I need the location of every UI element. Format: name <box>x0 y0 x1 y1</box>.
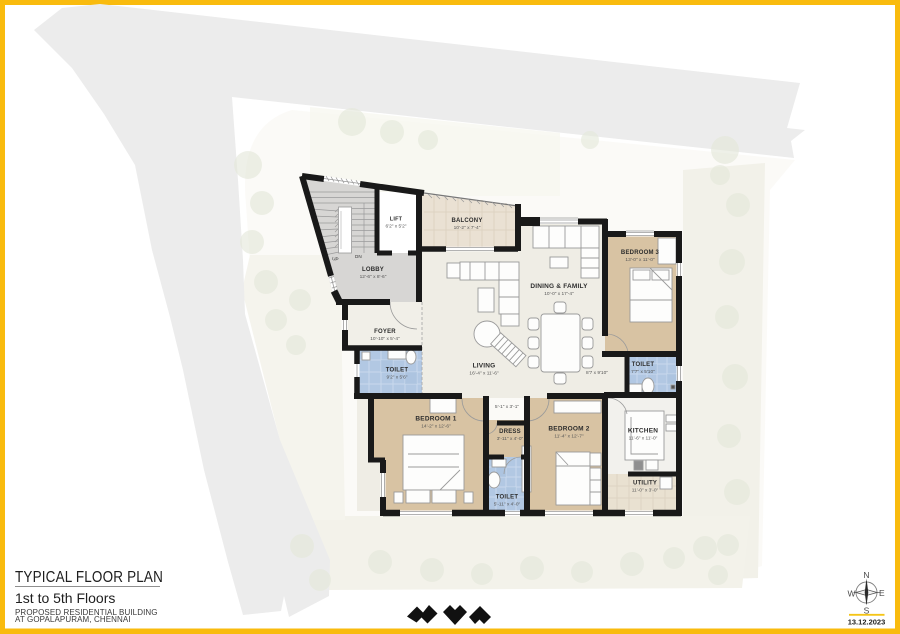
svg-text:BEDROOM 2: BEDROOM 2 <box>548 426 589 433</box>
svg-text:8'7 x 9'10": 8'7 x 9'10" <box>586 370 608 376</box>
svg-text:N: N <box>863 570 869 580</box>
svg-text:16'-4" x 11'-6": 16'-4" x 11'-6" <box>469 371 498 377</box>
svg-text:DN: DN <box>355 254 362 259</box>
svg-text:TOILET: TOILET <box>386 368 409 374</box>
svg-text:14'-2" x 12'-6": 14'-2" x 12'-6" <box>421 424 451 430</box>
svg-text:DRESS: DRESS <box>499 429 521 435</box>
svg-text:10'-0" x 17'-4": 10'-0" x 17'-4" <box>544 291 574 297</box>
svg-text:TOILET: TOILET <box>496 495 519 501</box>
svg-text:10'-2" x 7'-4": 10'-2" x 7'-4" <box>454 225 481 231</box>
svg-text:3'-11" x 4'-0": 3'-11" x 4'-0" <box>497 436 524 442</box>
svg-text:7'7" x 5'10": 7'7" x 5'10" <box>631 369 655 375</box>
svg-text:TOILET: TOILET <box>632 362 655 368</box>
svg-text:BEDROOM 3: BEDROOM 3 <box>621 250 660 256</box>
svg-text:12'-6" x 8'-6": 12'-6" x 8'-6" <box>360 274 387 280</box>
svg-text:6'2" x 5'2": 6'2" x 5'2" <box>386 224 407 230</box>
svg-text:BALCONY: BALCONY <box>451 218 482 224</box>
svg-text:UTILITY: UTILITY <box>633 481 657 487</box>
svg-text:LOBBY: LOBBY <box>362 267 384 273</box>
svg-text:W: W <box>847 589 855 599</box>
svg-text:BEDROOM 1: BEDROOM 1 <box>415 416 456 423</box>
svg-text:LIFT: LIFT <box>390 217 403 223</box>
svg-text:DINING & FAMILY: DINING & FAMILY <box>530 283 588 290</box>
svg-text:E: E <box>879 588 885 598</box>
svg-text:11'-6" x 11'-0": 11'-6" x 11'-0" <box>629 436 658 442</box>
svg-text:LIVING: LIVING <box>473 363 496 370</box>
svg-text:11'-0" x 3'-0": 11'-0" x 3'-0" <box>632 488 659 494</box>
svg-text:10'-10" x 5'-4": 10'-10" x 5'-4" <box>370 336 400 342</box>
svg-text:FOYER: FOYER <box>374 329 396 335</box>
svg-text:9'2" x 5'6": 9'2" x 5'6" <box>387 375 408 381</box>
svg-text:11'-4" x 12'-7": 11'-4" x 12'-7" <box>554 434 583 440</box>
svg-text:13'-0" x 11'-0": 13'-0" x 11'-0" <box>625 257 654 263</box>
svg-text:KITCHEN: KITCHEN <box>628 428 658 435</box>
svg-text:5'-11" x 4'-0": 5'-11" x 4'-0" <box>494 502 521 508</box>
svg-text:5'-1" x 3'-1": 5'-1" x 3'-1" <box>495 404 519 410</box>
svg-text:UP: UP <box>332 256 339 262</box>
svg-text:13.12.2023: 13.12.2023 <box>848 617 886 626</box>
